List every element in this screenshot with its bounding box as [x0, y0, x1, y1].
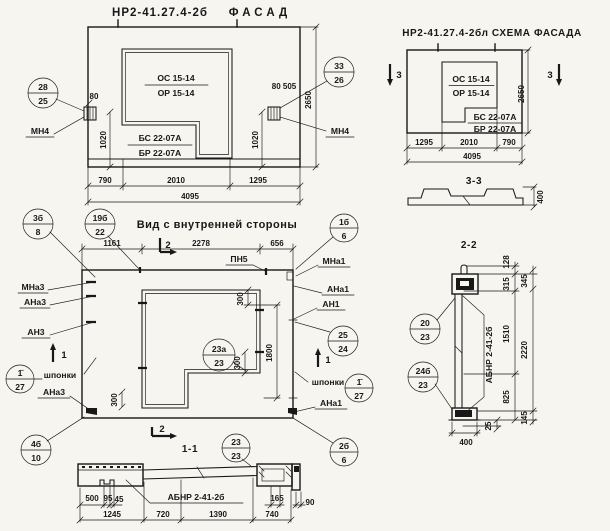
facade-opening-label-top: ОС 15-14 [157, 73, 194, 83]
dim-400-22: 400 [459, 438, 473, 447]
dim-2278: 2278 [192, 239, 210, 248]
section-mark-label: 2 [165, 240, 170, 251]
callout-top: 19б [93, 213, 108, 223]
s11-right-bar-core [294, 466, 299, 472]
keys-label: шпонки [312, 377, 344, 387]
weld-label: АНа3 [24, 297, 46, 307]
dim-300-top: 300 [236, 292, 245, 306]
weld-label: АН3 [27, 327, 44, 337]
part-label: АБНР 2-41-2б [168, 492, 225, 502]
callout-top: 23а [212, 344, 227, 354]
paper-background [0, 0, 610, 531]
anchor-label: МН4 [331, 126, 349, 136]
callout-bottom: 10 [31, 453, 41, 463]
dim-1245: 1245 [103, 510, 121, 519]
dim-80-left: 80 [90, 92, 99, 101]
callout-bottom: 23 [231, 451, 241, 461]
dim-2010-s: 2010 [460, 138, 478, 147]
scheme-panel-label-bottom: БР 22-07А [474, 124, 516, 134]
callout-top: 3б [33, 213, 43, 223]
callout-bottom: 23 [214, 358, 224, 368]
callout-bottom: 23 [420, 332, 430, 342]
callout-bottom: 26 [334, 75, 344, 85]
dim-656: 656 [270, 239, 284, 248]
callout-top: 24б [416, 366, 431, 376]
s11-left-block-texture [82, 466, 141, 468]
callout-bottom: 27 [15, 382, 25, 392]
section-2-2-title: 2-2 [461, 240, 477, 251]
blueprint-canvas: НР2-41.27.4-2б ФАСАД ОС 15-14 ОР 15-14 Б… [0, 0, 610, 531]
dim-1800: 1800 [265, 344, 274, 362]
scheme-opening-label-top: ОС 15-14 [452, 74, 489, 84]
weld-label: АНа3 [43, 387, 65, 397]
dim-825: 825 [502, 390, 511, 404]
dim-145: 145 [520, 411, 529, 425]
dim-790-s: 790 [502, 138, 516, 147]
section-mark-label: 1 [61, 350, 67, 361]
dim-4095-s: 4095 [463, 152, 481, 161]
section-mark-label: 3 [547, 70, 552, 81]
callout-top: 20 [420, 318, 430, 328]
weld-label: АНа1 [320, 398, 342, 408]
anchor-label: МН4 [31, 126, 49, 136]
facade-opening-label-bottom: ОР 15-14 [158, 88, 195, 98]
section-mark-label: 3 [396, 70, 401, 81]
dim-1295-s: 1295 [415, 138, 433, 147]
scheme-title: НР2-41.27.4-2бл СХЕМА ФАСАДА [402, 27, 582, 39]
callout-bottom: 8 [36, 227, 41, 237]
dim-400-33: 400 [536, 190, 545, 204]
callout-bottom: 25 [38, 96, 48, 106]
dim-4095-facade: 4095 [181, 192, 199, 201]
embed-label: ПН5 [230, 254, 247, 264]
dim-2650-scheme: 2650 [517, 85, 526, 103]
facade-title-word: ФАСАД [229, 7, 292, 19]
callout-top: 4б [31, 439, 41, 449]
dim-80-505: 80 505 [272, 82, 297, 91]
facade-panel-label-top: БС 22-07А [139, 133, 182, 143]
callout-top: 25 [338, 330, 348, 340]
keys-label: шпонки [44, 370, 76, 380]
inner-view-title: Вид с внутренней стороны [137, 219, 298, 231]
label-abnr-22: АБНР 2-41-2б [484, 327, 494, 384]
section-mark-label: 2 [159, 424, 164, 435]
callout-top: 1б [339, 217, 349, 227]
dim-1510: 1510 [502, 325, 511, 343]
callout-bottom: 24 [338, 344, 348, 354]
dim-740: 740 [265, 510, 279, 519]
dim-45: 45 [115, 495, 124, 504]
callout-top: 28 [38, 82, 48, 92]
s22-top-core-slot [460, 281, 469, 286]
dim-300-bl: 300 [110, 393, 119, 407]
callout-bottom: 6 [342, 455, 347, 465]
dim-720: 720 [156, 510, 170, 519]
dim-790: 790 [98, 176, 112, 185]
dim-2220: 2220 [520, 341, 529, 359]
s22-bottom-core [455, 410, 472, 417]
section-3-3-title: 3-3 [466, 176, 482, 187]
dim-315: 315 [502, 277, 511, 291]
dim-90: 90 [306, 498, 315, 507]
dim-128: 128 [502, 255, 511, 269]
dim-1020-left: 1020 [99, 131, 108, 149]
weld-label: АНа1 [327, 284, 349, 294]
callout-bottom: 22 [95, 227, 105, 237]
callout-top: 2б [339, 441, 349, 451]
dim-500: 500 [85, 494, 99, 503]
dim-345: 345 [520, 274, 529, 288]
facade-panel-label-bottom: БР 22-07А [139, 148, 181, 158]
dim-1020-right: 1020 [251, 131, 260, 149]
dim-1161: 1161 [103, 239, 121, 248]
weld-label: МНа3 [22, 282, 45, 292]
dim-1295: 1295 [249, 176, 267, 185]
dim-165: 165 [270, 494, 284, 503]
callout-1-27-right: 1̄ 27 [345, 374, 373, 402]
section-1-1-title: 1-1 [182, 444, 198, 455]
dim-1390: 1390 [209, 510, 227, 519]
dim-25: 25 [484, 421, 493, 430]
callout-bottom: 23 [418, 380, 428, 390]
facade-title-code: НР2-41.27.4-2б [112, 7, 208, 19]
weld-label: АН1 [322, 299, 339, 309]
scheme-opening-label-bottom: ОР 15-14 [453, 88, 490, 98]
drawing-sheet: НР2-41.27.4-2б ФАСАД ОС 15-14 ОР 15-14 Б… [0, 0, 610, 531]
callout-top: 23 [231, 437, 241, 447]
dim-95: 95 [104, 494, 113, 503]
dim-2010: 2010 [167, 176, 185, 185]
callout-bottom: 27 [354, 391, 364, 401]
section-mark-label: 1 [325, 355, 331, 366]
callout-top: 33 [334, 61, 344, 71]
weld-label: МНа1 [323, 256, 346, 266]
callout-bottom: 6 [342, 231, 347, 241]
scheme-panel-label-top: БС 22-07А [474, 112, 517, 122]
